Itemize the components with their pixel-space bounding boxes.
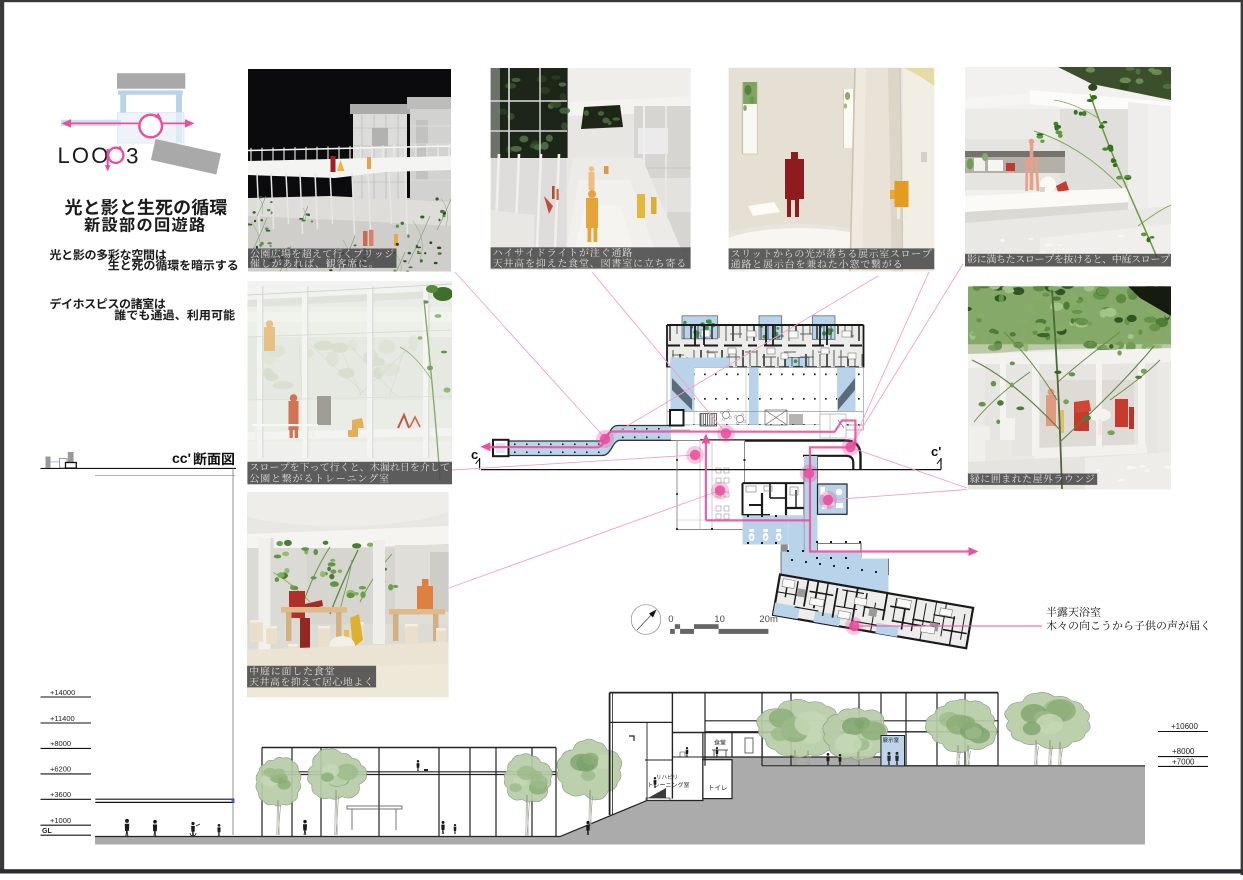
svg-text:+8000: +8000 <box>1172 747 1195 756</box>
svg-text:c: c <box>471 447 478 462</box>
svg-text:10: 10 <box>714 614 725 625</box>
svg-text:LOO: LOO <box>58 143 111 168</box>
svg-text:+11400: +11400 <box>50 714 75 723</box>
svg-text:GL: GL <box>42 828 52 835</box>
svg-text:+8000: +8000 <box>50 739 71 748</box>
svg-text:+14000: +14000 <box>50 688 75 697</box>
svg-text:c': c' <box>931 444 941 459</box>
svg-text:+1000: +1000 <box>50 816 71 825</box>
svg-text:+10600: +10600 <box>1171 722 1198 731</box>
svg-text:0: 0 <box>668 614 673 625</box>
svg-text:+3600: +3600 <box>50 790 71 799</box>
svg-text:3: 3 <box>126 144 139 169</box>
svg-text:+7000: +7000 <box>1172 757 1195 766</box>
svg-text:20m: 20m <box>759 614 778 625</box>
svg-text:cc': cc' <box>172 450 191 466</box>
svg-text:+6200: +6200 <box>50 765 71 774</box>
